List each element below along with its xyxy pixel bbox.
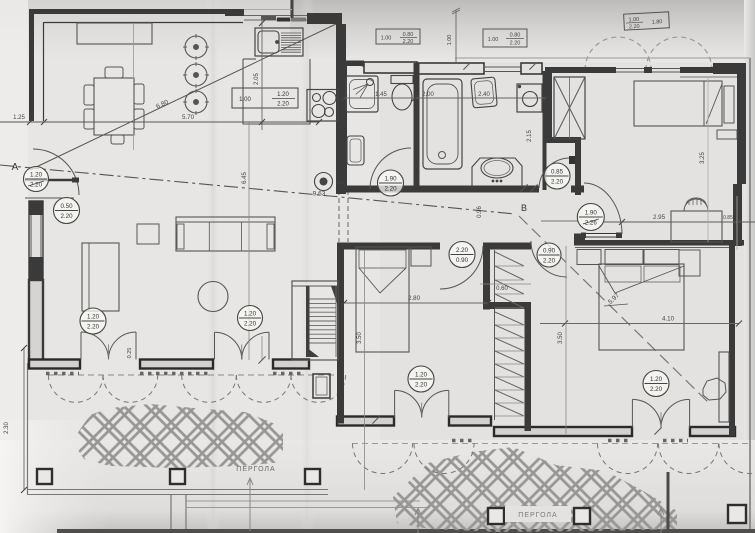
svg-text:2.20: 2.20 [60,213,73,220]
svg-text:1.20: 1.20 [277,92,289,98]
svg-text:1.20: 1.20 [415,372,428,379]
svg-text:6.45: 6.45 [242,172,248,184]
svg-text:0.80: 0.80 [403,32,414,38]
svg-text:2.00: 2.00 [422,92,434,98]
svg-text:2.20: 2.20 [403,39,414,45]
svg-text:1.00: 1.00 [447,35,453,46]
svg-text:1.45: 1.45 [375,92,387,98]
svg-text:2.20: 2.20 [510,41,521,47]
svg-text:ПЕРГОЛА: ПЕРГОЛА [518,512,557,519]
svg-text:2.20: 2.20 [543,258,556,265]
svg-text:0.90: 0.90 [456,257,469,264]
svg-text:A: A [12,162,19,173]
svg-text:3.50: 3.50 [357,332,363,344]
svg-text:1.20: 1.20 [244,311,257,318]
svg-text:2.80: 2.80 [408,295,421,302]
svg-text:1.80: 1.80 [652,19,663,26]
svg-text:2.95: 2.95 [653,214,666,221]
svg-text:0.80: 0.80 [510,33,521,39]
svg-text:2.20: 2.20 [415,382,428,389]
svg-text:0.96: 0.96 [477,206,483,218]
svg-text:ПЕРГОЛА: ПЕРГОЛА [236,466,275,473]
svg-text:1.20: 1.20 [30,172,43,179]
svg-text:2.20: 2.20 [456,247,469,254]
svg-text:1.00: 1.00 [488,37,499,43]
svg-text:2.20: 2.20 [244,321,257,328]
svg-text:0.25: 0.25 [127,348,133,359]
svg-text:1.90: 1.90 [585,210,598,217]
svg-text:4.10: 4.10 [662,316,675,323]
svg-text:2.20: 2.20 [551,179,564,186]
svg-text:2.20: 2.20 [629,24,640,31]
svg-text:2.20: 2.20 [650,386,663,393]
svg-text:2.40: 2.40 [478,92,490,98]
svg-text:5.70: 5.70 [182,114,195,121]
svg-text:0.85: 0.85 [723,215,733,221]
svg-text:2.20: 2.20 [87,324,100,331]
svg-text:2.15: 2.15 [527,130,533,142]
svg-text:2.05: 2.05 [254,73,260,85]
svg-text:PA: PA [337,181,346,188]
svg-text:0.50: 0.50 [60,203,73,210]
svg-text:1.90: 1.90 [384,176,397,183]
svg-text:1.00: 1.00 [381,36,392,42]
svg-text:2.20: 2.20 [384,186,397,193]
svg-text:3.25: 3.25 [700,152,706,164]
svg-text:2.30: 2.30 [4,422,10,434]
svg-text:0.90: 0.90 [543,248,556,255]
svg-text:2.20: 2.20 [277,102,289,108]
svg-text:1.00: 1.00 [239,97,251,103]
svg-text:B: B [521,203,527,213]
svg-text:3.50: 3.50 [558,332,564,344]
svg-text:0.60: 0.60 [496,286,508,292]
svg-text:1.25: 1.25 [13,115,25,121]
svg-text:1.20: 1.20 [650,376,663,383]
svg-text:1.20: 1.20 [87,314,100,321]
svg-text:9.63: 9.63 [313,191,326,198]
svg-text:0.85: 0.85 [551,169,564,176]
